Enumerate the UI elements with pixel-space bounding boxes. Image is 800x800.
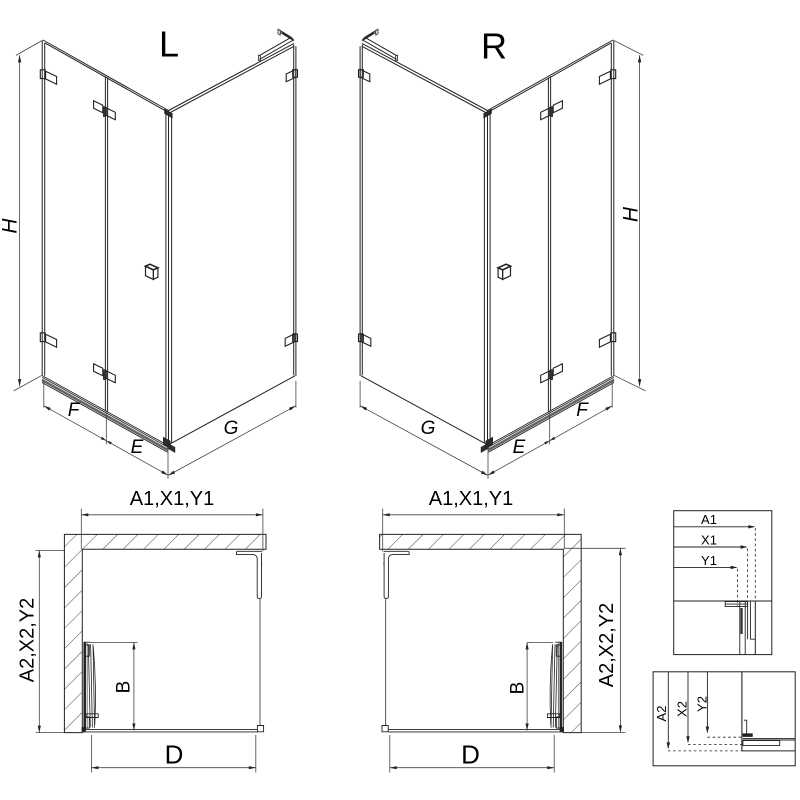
svg-text:E: E (131, 437, 144, 458)
svg-text:B: B (114, 681, 135, 694)
svg-text:Y2: Y2 (694, 696, 709, 712)
svg-text:H: H (0, 218, 22, 234)
svg-text:B: B (508, 682, 529, 695)
svg-text:X1: X1 (701, 532, 717, 547)
svg-text:R: R (481, 26, 507, 67)
svg-text:D: D (461, 740, 480, 770)
svg-text:A2: A2 (654, 706, 669, 722)
svg-text:A2,X2,Y2: A2,X2,Y2 (17, 598, 39, 683)
svg-text:A1,X1,Y1: A1,X1,Y1 (130, 488, 215, 510)
svg-text:D: D (165, 740, 184, 770)
svg-text:A2,X2,Y2: A2,X2,Y2 (596, 603, 618, 688)
svg-text:A1: A1 (701, 512, 717, 527)
svg-text:X2: X2 (675, 701, 690, 717)
svg-text:F: F (576, 400, 589, 421)
svg-text:F: F (68, 400, 81, 421)
svg-text:A1,X1,Y1: A1,X1,Y1 (429, 488, 514, 510)
svg-text:E: E (513, 437, 526, 458)
svg-text:Y1: Y1 (701, 553, 717, 568)
svg-text:H: H (620, 206, 643, 222)
svg-text:L: L (159, 23, 179, 64)
svg-text:G: G (224, 418, 239, 439)
svg-text:G: G (421, 418, 436, 439)
